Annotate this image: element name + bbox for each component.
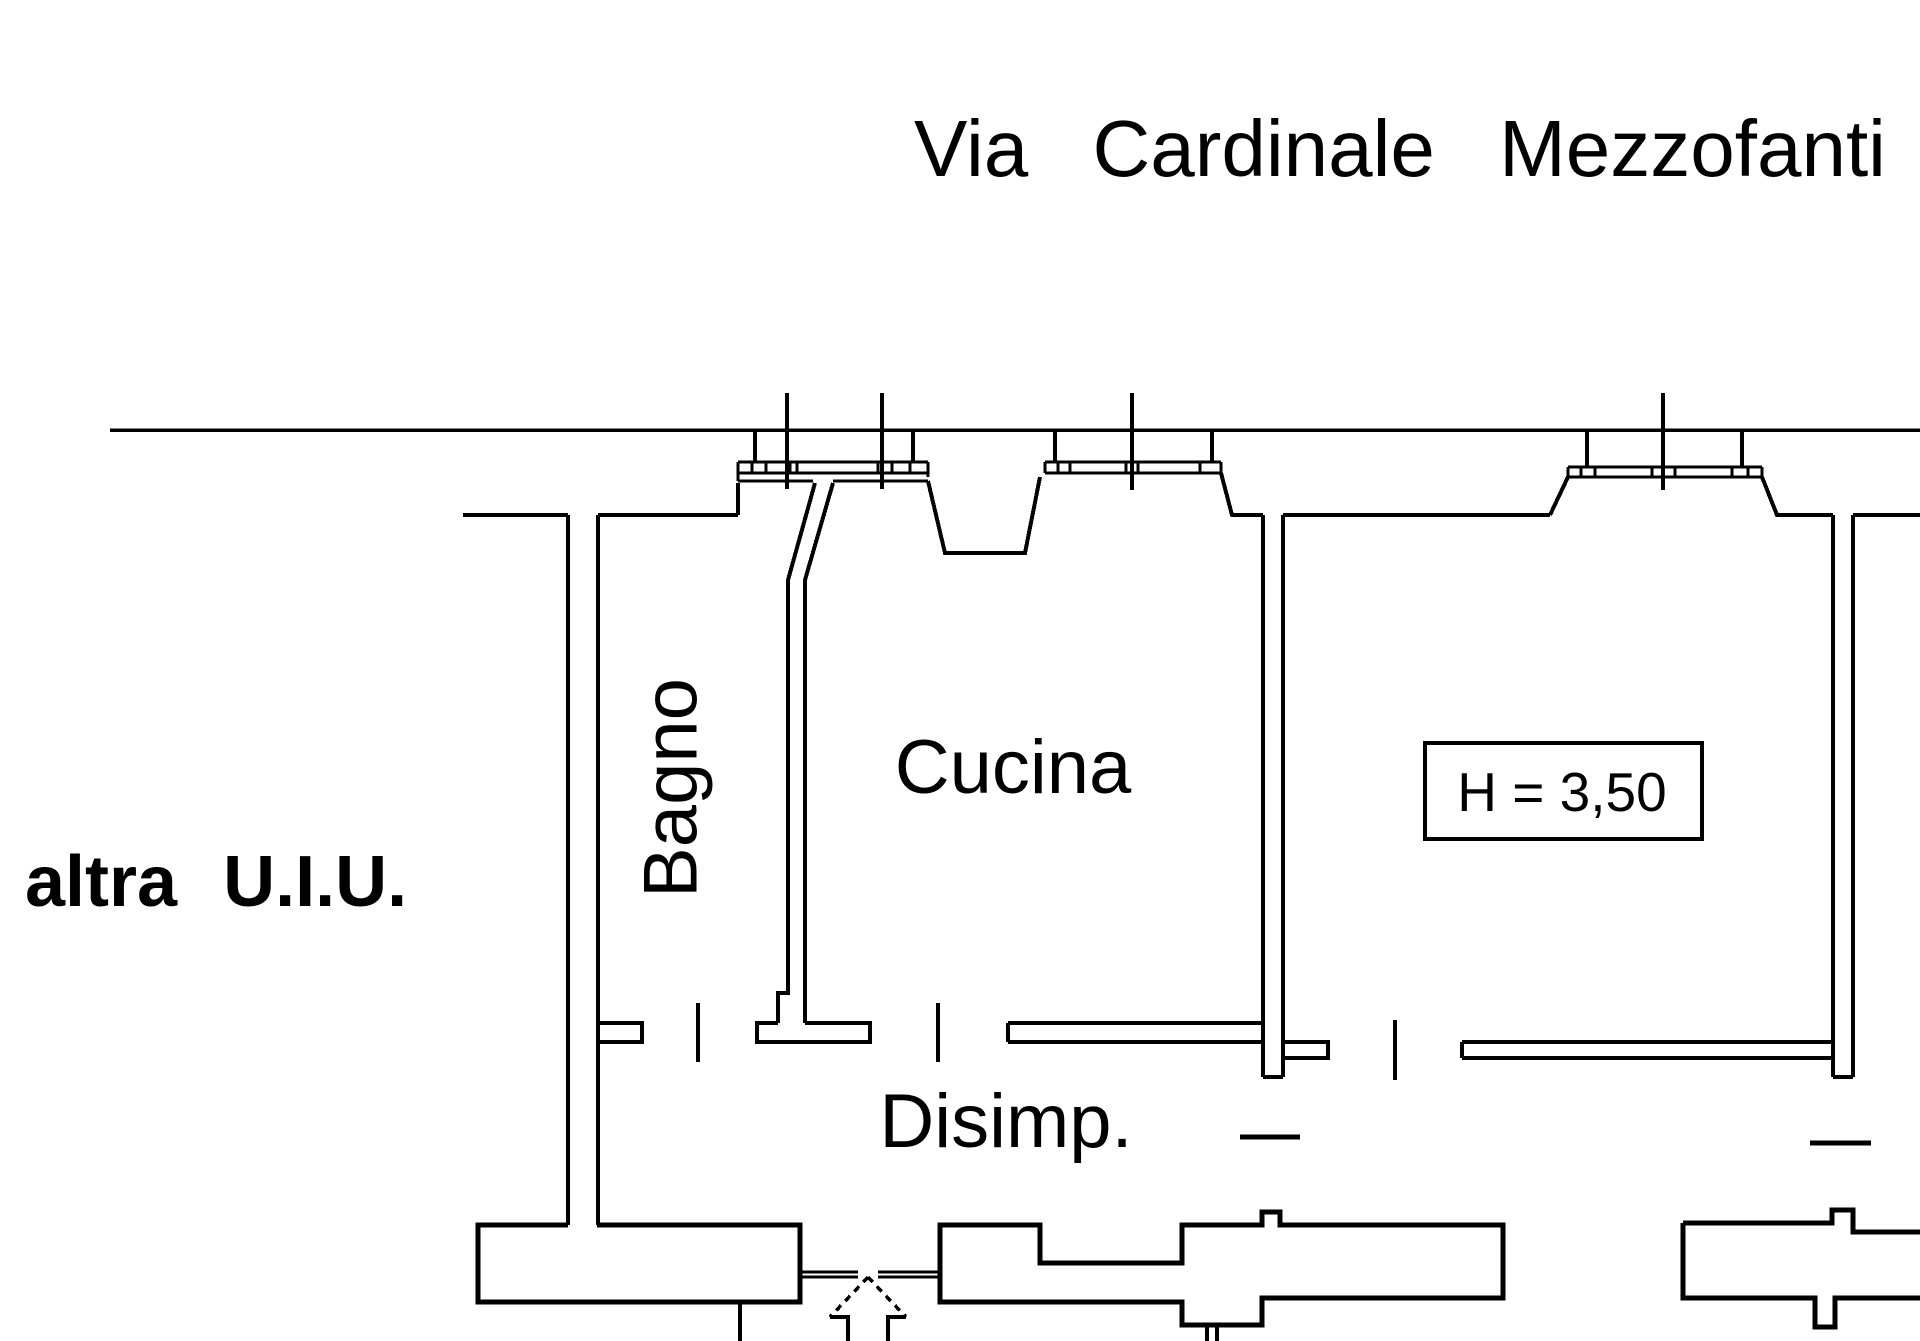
window-splays — [1550, 477, 1833, 515]
entrance-arrow-dashed-head — [830, 1277, 906, 1317]
wall-cucina-rightroom — [1263, 515, 1283, 1077]
floor-plan-drawing: H = 3,50 Via Cardinale Mezzofanti Bagno … — [0, 0, 1920, 1341]
bottom-wall-middle-outline — [940, 1212, 1503, 1325]
entrance-arrow-stem — [830, 1317, 906, 1341]
ceiling-height-text: H = 3,50 — [1457, 761, 1666, 823]
entrance-arrow-icon — [830, 1277, 906, 1341]
street-name-label: Via Cardinale Mezzofanti — [914, 104, 1886, 193]
window-axis-ticks — [787, 393, 1663, 490]
window-cucina-right — [1045, 432, 1263, 515]
adjacent-unit-label: altra U.I.U. — [25, 842, 407, 922]
entrance — [800, 1272, 940, 1341]
room-label-bagno: Bagno — [629, 678, 714, 898]
partition-bagno-cucina — [757, 483, 870, 1042]
window-reveal-lines — [755, 430, 913, 462]
room-label-disimpegno: Disimp. — [879, 1079, 1132, 1164]
rightroom-bottom-wall — [1462, 1042, 1833, 1058]
window-frame-mullions — [1058, 462, 1200, 473]
window-frame-mullions — [752, 462, 910, 473]
wall-stub-right-of-cucina-wall — [1283, 1042, 1328, 1058]
cucina-splayed-opening — [928, 477, 1040, 553]
entrance-threshold-lines — [800, 1272, 940, 1277]
wall-rightroom-right — [1833, 515, 1853, 1077]
bottom-wall-middle — [940, 1212, 1503, 1341]
bottom-wall-left — [478, 1225, 800, 1341]
ceiling-height-annotation: H = 3,50 — [1425, 743, 1702, 839]
threshold-dashes — [1240, 1137, 1871, 1143]
bottom-wall-left-outline — [478, 1225, 800, 1302]
bottom-wall-right-outline — [1683, 1210, 1920, 1327]
cucina-bottom-wall — [1008, 1023, 1262, 1042]
room-label-cucina: Cucina — [895, 725, 1132, 810]
floor-plan: H = 3,50 Via Cardinale Mezzofanti Bagno … — [0, 0, 1920, 1341]
window-right-room — [1550, 430, 1833, 515]
bagno-door-stub — [598, 1023, 642, 1042]
window-bagno-cucina — [738, 430, 928, 481]
window-splay-right — [1221, 473, 1263, 515]
